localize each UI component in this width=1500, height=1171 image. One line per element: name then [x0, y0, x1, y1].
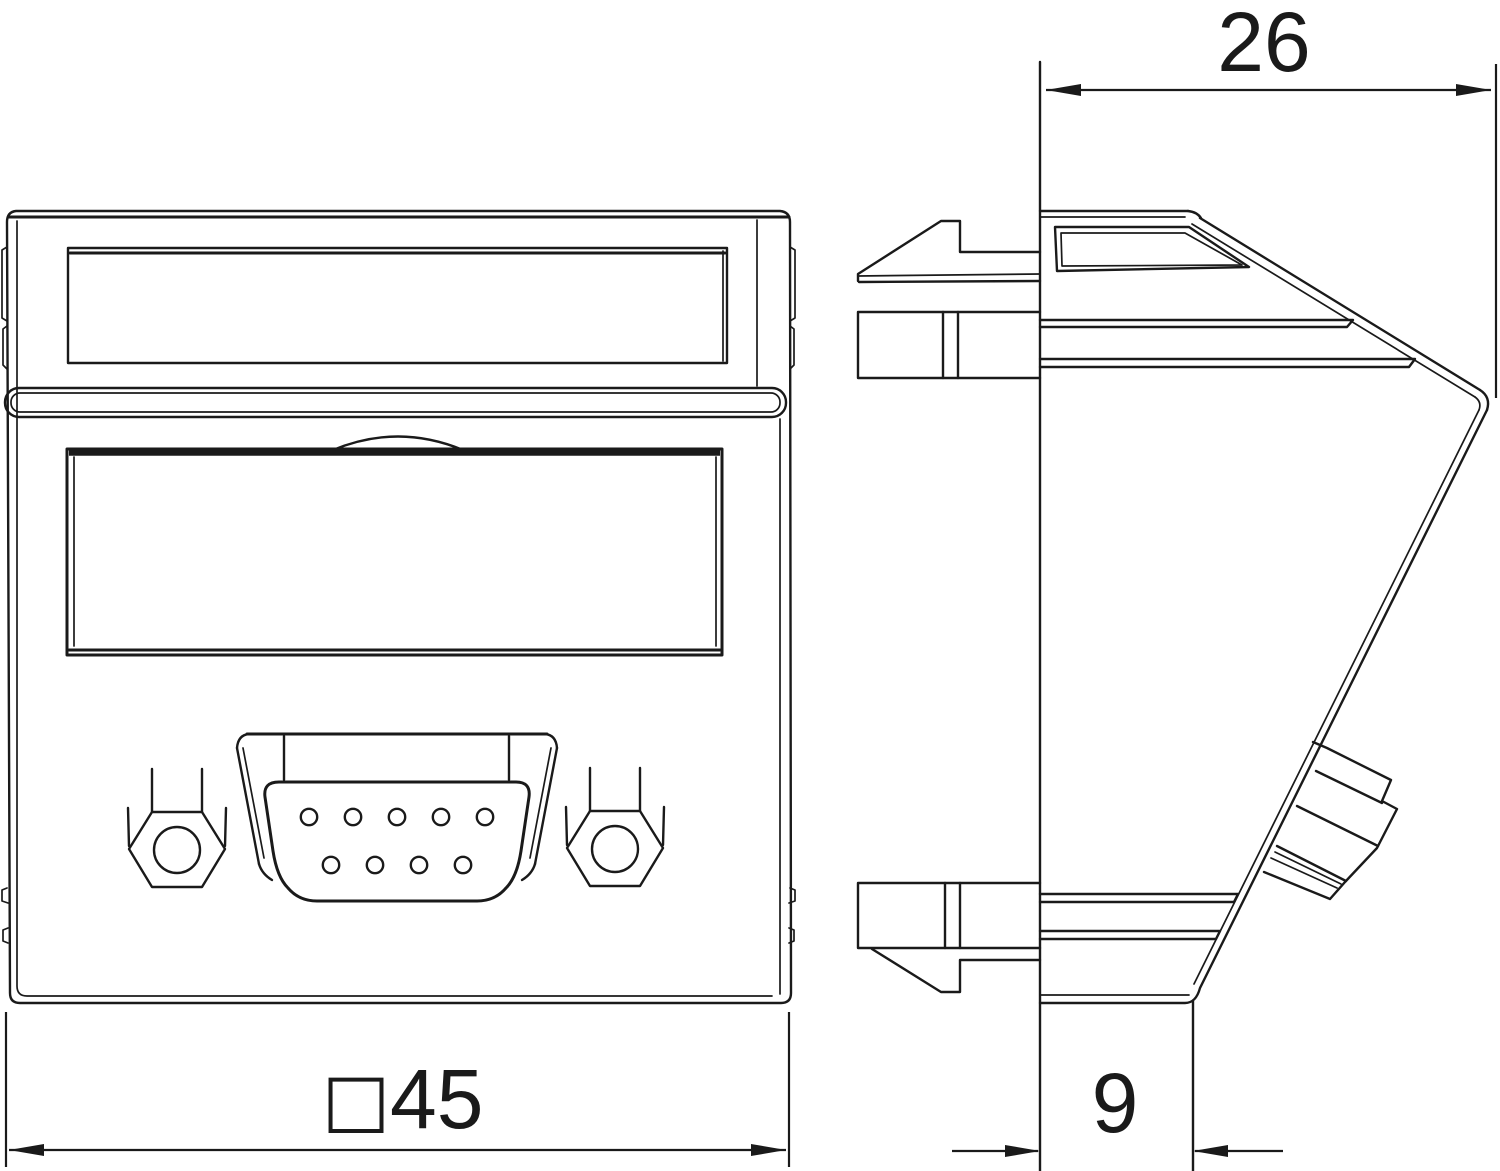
housing-diagonal-upper-inner	[1192, 224, 1475, 397]
dsub-shell-slant-right	[535, 748, 557, 864]
dsub-rear-step	[1316, 771, 1382, 803]
dsub-pin-hole	[389, 809, 405, 825]
dsub-pin-hole	[455, 857, 471, 873]
top-claw-flange-upper	[858, 274, 1040, 276]
hex-jackscrew-left	[128, 769, 226, 887]
hex-bore	[154, 827, 200, 873]
top-claw-flange-lower	[859, 281, 1040, 282]
dsub-shell-corner-left	[237, 734, 249, 748]
dsub-shell-slant-right-inner	[530, 748, 551, 858]
hex-tick	[225, 808, 226, 846]
arrowhead-right	[751, 1144, 786, 1156]
hex-tick	[663, 807, 664, 845]
rib-strip	[1040, 320, 1353, 327]
housing-diagonal-upper	[1200, 218, 1480, 390]
dimension-front-size: □ 45	[6, 1012, 789, 1167]
drawing-canvas: 26 □ 45 9	[0, 0, 1500, 1171]
dsub-pin-hole	[367, 857, 383, 873]
square-symbol: □	[322, 1057, 390, 1141]
dsub-pin-hole	[411, 857, 427, 873]
dim-label-45: 45	[390, 1052, 483, 1146]
dsub-pin-hole	[301, 809, 317, 825]
top-claw	[858, 221, 1040, 281]
arrowhead-right	[1193, 1145, 1228, 1157]
arrowhead-right	[1456, 84, 1491, 96]
dsub-pin-hole	[477, 809, 493, 825]
rib-strip	[1040, 359, 1415, 367]
bottom-snap-tab	[858, 883, 1040, 948]
dsub-connector	[237, 734, 557, 901]
arrowhead-left	[9, 1144, 44, 1156]
dsub-pin-hole	[323, 857, 339, 873]
housing-right-corner-inner	[1475, 397, 1480, 410]
housing-right-corner	[1480, 390, 1488, 410]
housing-diagonal-lower	[1040, 410, 1487, 1003]
dimension-top-width: 26	[1046, 0, 1496, 398]
side-tab	[2, 888, 8, 903]
hex-tick	[128, 808, 129, 846]
housing-top-corner	[1188, 211, 1201, 218]
hex-tick	[566, 807, 567, 845]
bottom-claw	[872, 949, 1040, 992]
top-snap-tab	[858, 312, 1040, 378]
dsub-shell-slant-left	[237, 748, 259, 864]
rib-strip	[1040, 931, 1220, 939]
arrowhead-left	[1046, 84, 1081, 96]
dsub-rear-step	[1271, 858, 1337, 888]
dim-label-26: 26	[1217, 0, 1310, 89]
side-tab	[3, 928, 8, 943]
rib-strip	[1040, 894, 1238, 902]
dsub-pin-hole	[345, 809, 361, 825]
cover-window	[67, 449, 722, 655]
dsub-shell-slant-left-inner	[243, 748, 264, 858]
dsub-shell-hook-right	[522, 864, 535, 880]
technical-drawing: 26 □ 45 9	[0, 0, 1500, 1171]
label-field	[68, 248, 727, 363]
dim-label-9: 9	[1092, 1056, 1139, 1150]
hex-nut	[129, 812, 225, 887]
dsub-rear-step	[1297, 806, 1378, 846]
module-outline	[7, 211, 791, 1003]
dimension-bottom-depth: 9	[952, 1056, 1283, 1157]
dsub-face	[265, 782, 529, 901]
dsub-rear-step	[1275, 852, 1341, 884]
dsub-holes	[301, 809, 493, 873]
divider-band-inner	[11, 393, 780, 412]
hex-bore	[592, 826, 638, 872]
arrowhead-left	[1005, 1145, 1040, 1157]
hex-nut	[567, 811, 663, 886]
hex-jackscrew-right	[566, 768, 664, 886]
front-view	[2, 211, 795, 1003]
module-inner-left-bottom	[17, 221, 772, 996]
dsub-pin-hole	[433, 809, 449, 825]
rib-strips	[1040, 320, 1415, 939]
side-view	[858, 62, 1488, 1171]
dsub-shell-hook-left	[259, 864, 272, 880]
dsub-shell-corner-right	[545, 734, 557, 748]
